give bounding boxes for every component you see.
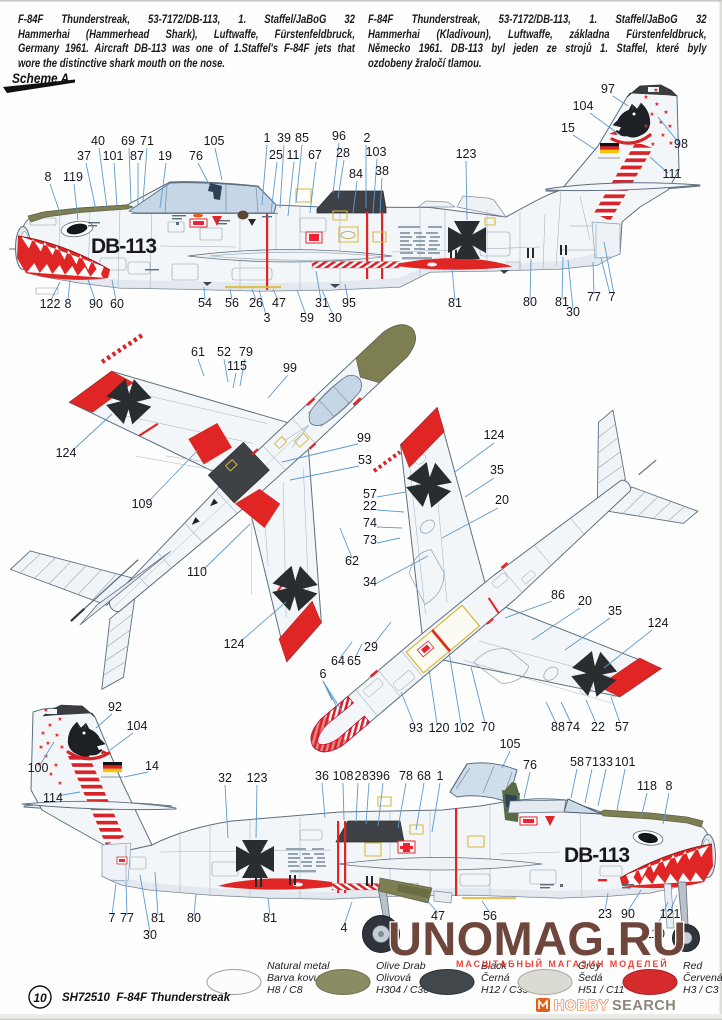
svg-text:14: 14 (145, 759, 159, 773)
svg-text:★: ★ (654, 101, 659, 108)
svg-text:85: 85 (295, 131, 309, 145)
svg-text:67: 67 (308, 148, 322, 162)
svg-text:76: 76 (523, 758, 537, 772)
svg-text:★: ★ (653, 87, 658, 94)
svg-text:2: 2 (364, 131, 371, 145)
svg-text:54: 54 (198, 296, 212, 310)
svg-text:81: 81 (151, 911, 165, 925)
svg-text:81: 81 (263, 911, 277, 925)
svg-text:Šedá: Šedá (578, 971, 603, 984)
svg-text:108: 108 (333, 769, 354, 783)
svg-text:60: 60 (110, 297, 124, 311)
svg-text:19: 19 (158, 149, 172, 163)
svg-text:69: 69 (121, 134, 135, 148)
svg-text:★: ★ (650, 141, 655, 148)
svg-text:124: 124 (648, 616, 669, 630)
svg-text:56: 56 (225, 296, 239, 310)
svg-text:Červená: Červená (683, 971, 722, 984)
svg-text:★: ★ (40, 730, 45, 737)
svg-text:Natural metal: Natural metal (267, 960, 330, 972)
svg-text:30: 30 (143, 928, 157, 942)
svg-text:96: 96 (332, 129, 346, 143)
svg-text:8: 8 (666, 779, 673, 793)
svg-text:97: 97 (601, 82, 615, 96)
svg-text:79: 79 (239, 345, 253, 359)
svg-text:1: 1 (437, 769, 444, 783)
svg-text:15: 15 (561, 121, 575, 135)
svg-text:90: 90 (89, 297, 103, 311)
svg-text:8: 8 (65, 297, 72, 311)
svg-text:★: ★ (660, 132, 665, 139)
svg-text:★: ★ (59, 744, 64, 751)
svg-text:109: 109 (132, 497, 153, 511)
svg-text:115: 115 (227, 359, 247, 373)
svg-text:DB-113: DB-113 (91, 235, 157, 258)
svg-text:68: 68 (417, 769, 431, 783)
svg-text:77: 77 (587, 290, 601, 304)
svg-text:99: 99 (357, 431, 371, 445)
svg-text:★: ★ (57, 780, 62, 787)
svg-text:30: 30 (328, 311, 342, 325)
svg-text:29: 29 (364, 640, 378, 654)
svg-text:HOBBY: HOBBY (554, 998, 609, 1014)
svg-text:76: 76 (189, 149, 203, 163)
svg-text:★: ★ (649, 111, 654, 118)
svg-text:99: 99 (283, 361, 297, 375)
svg-text:★: ★ (47, 722, 52, 729)
svg-text:20: 20 (495, 493, 509, 507)
svg-text:25: 25 (269, 148, 283, 162)
svg-text:78: 78 (399, 769, 413, 783)
svg-text:32: 32 (218, 771, 232, 785)
svg-text:36: 36 (315, 769, 329, 783)
svg-text:104: 104 (573, 99, 594, 113)
svg-text:59: 59 (300, 311, 314, 325)
svg-text:88: 88 (551, 720, 565, 734)
svg-text:1: 1 (264, 131, 271, 145)
svg-text:71: 71 (140, 134, 154, 148)
svg-text:57: 57 (615, 720, 629, 734)
svg-text:114: 114 (43, 791, 63, 805)
svg-text:95: 95 (342, 296, 356, 310)
svg-text:53: 53 (358, 453, 372, 467)
svg-text:101: 101 (103, 149, 124, 163)
svg-text:4: 4 (341, 921, 348, 935)
svg-text:28: 28 (336, 146, 350, 160)
svg-text:86: 86 (551, 588, 565, 602)
svg-text:120: 120 (429, 721, 450, 735)
svg-text:92: 92 (108, 700, 122, 714)
svg-text:84: 84 (349, 167, 363, 181)
svg-text:52: 52 (217, 345, 231, 359)
svg-text:123: 123 (456, 147, 477, 161)
svg-text:H8 / C8: H8 / C8 (267, 984, 303, 996)
svg-text:7: 7 (109, 911, 116, 925)
svg-text:★: ★ (54, 732, 59, 739)
svg-text:★: ★ (53, 762, 58, 769)
svg-text:30: 30 (566, 305, 580, 319)
svg-text:UNOMAG.RU: UNOMAG.RU (388, 912, 686, 965)
svg-text:3: 3 (264, 311, 271, 325)
svg-text:101: 101 (615, 755, 636, 769)
svg-text:65: 65 (347, 654, 361, 668)
svg-text:Red: Red (683, 960, 703, 972)
svg-text:20: 20 (578, 594, 592, 608)
svg-text:31: 31 (315, 296, 329, 310)
svg-text:★: ★ (43, 707, 48, 714)
svg-text:38: 38 (375, 164, 389, 178)
svg-text:35: 35 (608, 604, 622, 618)
svg-text:★: ★ (643, 123, 648, 130)
svg-text:33: 33 (599, 755, 613, 769)
svg-text:22: 22 (363, 499, 377, 513)
svg-text:Olivová: Olivová (376, 972, 411, 984)
svg-text:H51 / C11: H51 / C11 (578, 984, 625, 996)
svg-text:80: 80 (187, 911, 201, 925)
svg-text:77: 77 (120, 911, 134, 925)
svg-text:★: ★ (48, 771, 53, 778)
svg-text:10: 10 (33, 991, 47, 1005)
svg-text:40: 40 (91, 134, 105, 148)
svg-text:122: 122 (40, 297, 61, 311)
svg-text:62: 62 (345, 554, 359, 568)
svg-text:98: 98 (674, 137, 688, 151)
svg-text:74: 74 (566, 720, 580, 734)
svg-text:Černá: Černá (481, 971, 510, 984)
svg-text:96: 96 (376, 769, 390, 783)
svg-text:★: ★ (663, 109, 668, 116)
svg-text:71: 71 (585, 755, 599, 769)
svg-text:74: 74 (363, 516, 377, 530)
svg-text:2: 2 (355, 769, 362, 783)
svg-text:★: ★ (668, 140, 673, 147)
svg-text:26: 26 (249, 296, 263, 310)
svg-text:Barva kovu: Barva kovu (267, 972, 320, 984)
svg-text:123: 123 (247, 771, 268, 785)
svg-text:61: 61 (191, 345, 205, 359)
svg-text:100: 100 (28, 761, 49, 775)
svg-text:73: 73 (363, 533, 377, 547)
svg-text:102: 102 (454, 721, 475, 735)
svg-text:104: 104 (127, 719, 148, 733)
svg-text:★: ★ (38, 744, 43, 751)
svg-text:7: 7 (609, 290, 616, 304)
svg-text:87: 87 (130, 149, 144, 163)
svg-text:★: ★ (57, 716, 62, 723)
svg-text:110: 110 (187, 565, 207, 579)
svg-text:★: ★ (45, 740, 50, 747)
svg-text:35: 35 (490, 463, 504, 477)
svg-text:119: 119 (63, 170, 83, 184)
svg-text:118: 118 (637, 779, 657, 793)
svg-text:47: 47 (272, 296, 286, 310)
svg-text:SEARCH: SEARCH (612, 998, 676, 1014)
svg-text:H3 / C3: H3 / C3 (683, 984, 719, 996)
svg-text:39: 39 (277, 131, 291, 145)
svg-text:22: 22 (591, 720, 605, 734)
svg-text:58: 58 (570, 755, 584, 769)
svg-text:124: 124 (224, 637, 245, 651)
svg-text:83: 83 (362, 769, 376, 783)
svg-text:80: 80 (523, 295, 537, 309)
svg-text:70: 70 (481, 720, 495, 734)
svg-text:105: 105 (500, 737, 521, 751)
svg-text:6: 6 (320, 667, 327, 681)
svg-text:111: 111 (662, 167, 681, 181)
svg-text:8: 8 (45, 170, 52, 184)
svg-text:81: 81 (448, 296, 462, 310)
svg-text:105: 105 (204, 134, 225, 148)
svg-text:34: 34 (363, 575, 377, 589)
svg-text:SH72510 F-84F Thunderstreak: SH72510 F-84F Thunderstreak (62, 992, 231, 1004)
svg-text:DB-113: DB-113 (564, 844, 630, 867)
svg-text:11: 11 (287, 148, 300, 162)
svg-text:★: ★ (643, 94, 648, 101)
svg-text:93: 93 (409, 721, 423, 735)
svg-text:37: 37 (77, 149, 91, 163)
svg-text:64: 64 (331, 654, 345, 668)
svg-text:103: 103 (366, 145, 387, 159)
svg-text:124: 124 (484, 428, 505, 442)
svg-text:124: 124 (56, 446, 77, 460)
